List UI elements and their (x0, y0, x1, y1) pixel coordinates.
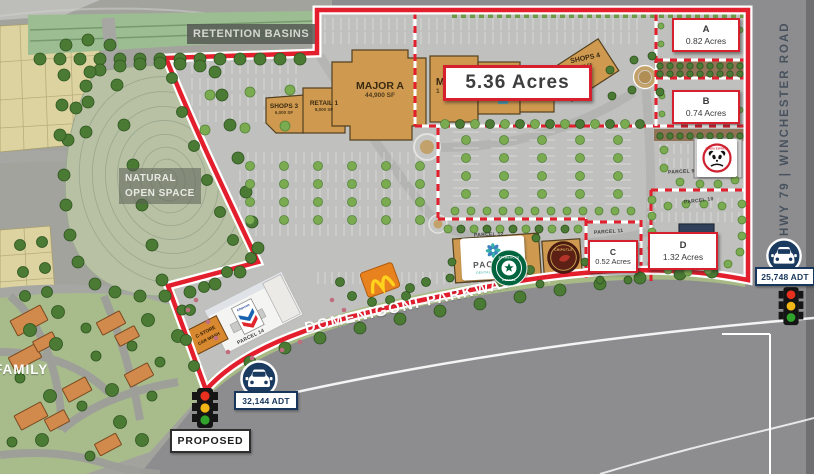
starbucks-ring-text-top: STARBUCKS (499, 256, 520, 260)
starbucks-ring-text-bottom: COFFEE (502, 278, 516, 282)
retail1-label: RETAIL 1 8,000 SF (300, 100, 348, 113)
proposed-label: PROPOSED (170, 429, 251, 453)
panda-express-logo: PANDA EXPRESS (697, 139, 737, 177)
pad-b-box: B 0.74 Acres (672, 90, 740, 124)
proposed-signal-icon (192, 388, 218, 428)
natural-line1: NATURAL (125, 171, 195, 186)
pad-a-box: A 0.82 Acres (672, 18, 740, 52)
major-a-label: MAJOR A 44,900 SF (340, 80, 420, 100)
natural-open-space-label: NATURAL OPEN SPACE (119, 168, 201, 204)
hwy79-winchester-label: HWY 79 | WINCHESTER ROAD (779, 14, 791, 236)
existing-signal-icon (779, 287, 804, 325)
chipotle-wordmark: CHIPOTLE (554, 248, 573, 252)
panda-ring-text: PANDA EXPRESS (706, 148, 729, 151)
family-label: FAMILY (0, 362, 48, 377)
starbucks-logo: STARBUCKS COFFEE (490, 249, 528, 292)
highlight-acres-box: 5.36 Acres (443, 65, 592, 101)
domenigoni-adt-badge: 32,144 ADT (234, 391, 298, 410)
pad-c-box: C 0.52 Acres (588, 240, 638, 273)
site-plan: Chevron C-STORE CAR WASH RETENTION BASIN… (0, 0, 814, 474)
natural-line2: OPEN SPACE (125, 186, 195, 201)
chipotle-logo: CHIPOTLE (547, 241, 580, 279)
retention-basins-label: RETENTION BASINS (187, 24, 315, 44)
hwy79-shoulder (806, 0, 814, 474)
hwy79-adt-badge: 25,748 ADT (755, 267, 814, 286)
pad-d-box: D 1.32 Acres (648, 232, 718, 270)
